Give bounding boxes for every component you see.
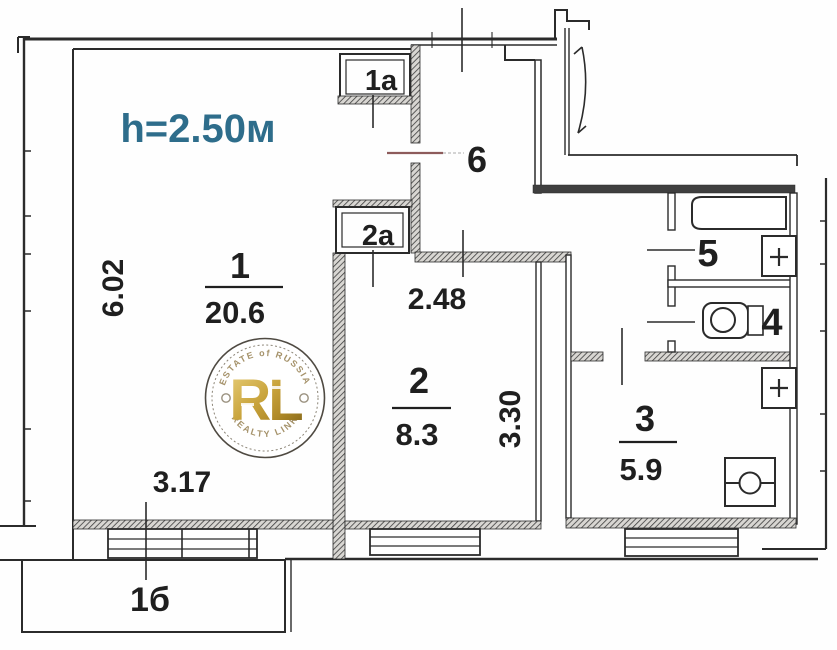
room2-right-wall xyxy=(536,262,541,521)
room1-number: 1 xyxy=(230,245,250,286)
room2-top-wall xyxy=(415,252,571,262)
balcony-label: 1б xyxy=(130,581,170,619)
stove-icon xyxy=(725,458,775,506)
vent-shaft-icon xyxy=(762,236,796,276)
ceiling-height-label: h=2.50м xyxy=(120,107,275,151)
kitchen-top-wall xyxy=(571,352,795,361)
corridor-wall xyxy=(411,45,420,253)
landing-wall xyxy=(533,185,795,193)
corridor-notch xyxy=(505,45,541,193)
room6-number: 6 xyxy=(467,139,487,180)
stamp-dot-right xyxy=(300,394,308,402)
entry-door-swing-icon xyxy=(574,47,586,133)
watermark-stamp: ESTATE of RUSSIA REALTY LINK RL xyxy=(206,339,325,458)
dim-room1-width: 3.17 xyxy=(153,466,211,499)
room4-number: 4 xyxy=(761,302,782,344)
watermark-monogram: RL xyxy=(229,368,302,433)
dim-room2-depth: 3.30 xyxy=(494,390,527,448)
window-kitchen xyxy=(625,529,738,556)
vent-shaft-icon-2 xyxy=(762,368,796,408)
room1-room2-wall xyxy=(333,253,345,559)
kitchen-left-wall xyxy=(566,255,571,518)
entrance-zone xyxy=(555,10,797,166)
window-room1 xyxy=(108,529,257,558)
room2-bottom-wall xyxy=(345,521,541,529)
room1-area: 20.6 xyxy=(205,295,265,330)
plan-labels: h=2.50м 1 20.6 2 8.3 3 5.9 4 5 6 1a 2a 1… xyxy=(97,65,783,619)
toilet-icon xyxy=(703,303,763,338)
closet-2a-label: 2a xyxy=(362,220,395,252)
bathtub-icon xyxy=(692,197,786,229)
room2-number: 2 xyxy=(409,360,429,401)
room5-number: 5 xyxy=(697,233,718,275)
window-room2 xyxy=(370,529,480,555)
dim-room2-width: 2.48 xyxy=(408,283,466,316)
floor-plan-drawing: h=2.50м 1 20.6 2 8.3 3 5.9 4 5 6 1a 2a 1… xyxy=(0,0,837,650)
closet-1a-label: 1a xyxy=(365,65,398,97)
room1-bottom-wall xyxy=(73,520,333,529)
dim-room1-depth: 6.02 xyxy=(97,259,130,317)
room2-area: 8.3 xyxy=(395,417,438,452)
room3-number: 3 xyxy=(635,398,655,439)
room3-area: 5.9 xyxy=(619,452,662,487)
floor-plan: h=2.50м 1 20.6 2 8.3 3 5.9 4 5 6 1a 2a 1… xyxy=(0,0,837,650)
kitchen-bottom-wall xyxy=(566,518,796,528)
